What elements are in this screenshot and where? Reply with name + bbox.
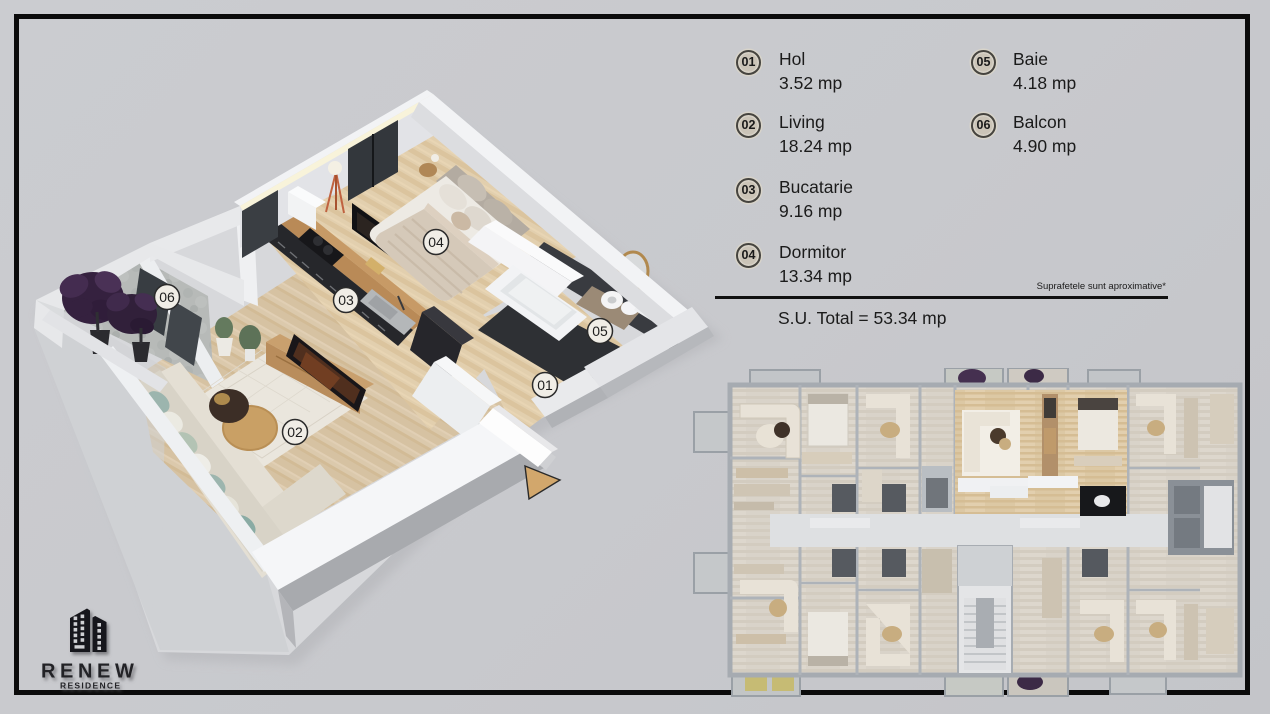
svg-text:RESIDENCE: RESIDENCE: [60, 681, 121, 691]
svg-text:RENEW: RENEW: [41, 661, 138, 683]
